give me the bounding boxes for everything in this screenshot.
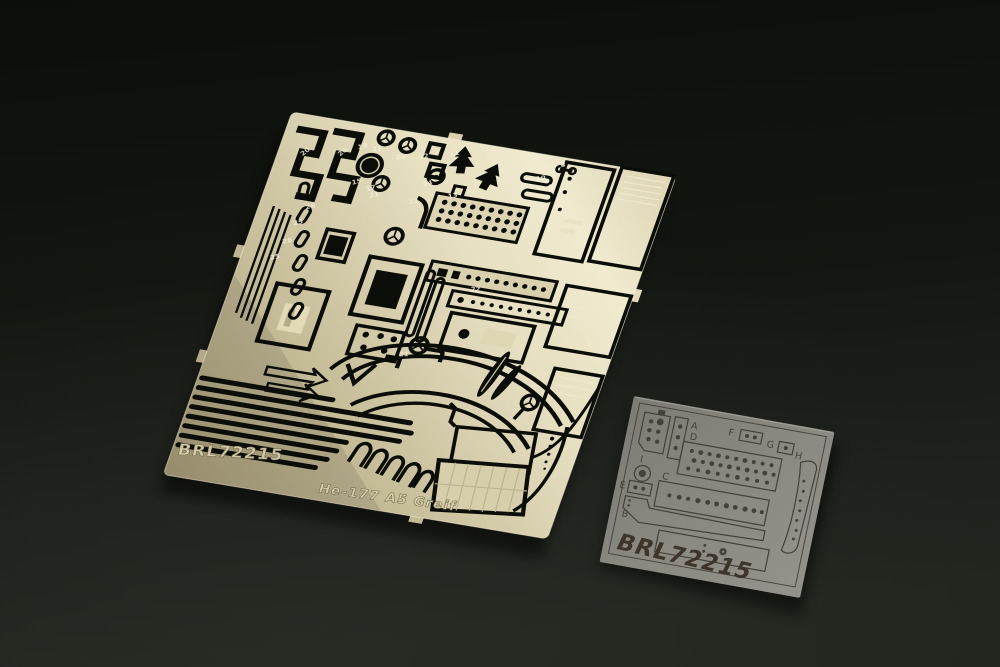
film-sheet: A F G H D I C E B BRL72215 bbox=[599, 396, 834, 598]
photo-canvas: 20 20 21 21 19 15 17 12 11 22 21 14 13 8… bbox=[0, 0, 1000, 667]
part-number-label: 9 bbox=[548, 183, 554, 191]
photo-scene: 20 20 21 21 19 15 17 12 11 22 21 14 13 8… bbox=[0, 0, 1000, 667]
part-number-label: 21 bbox=[399, 350, 410, 358]
part-number-label: 22 bbox=[470, 286, 481, 294]
part-number-label: 8 bbox=[560, 161, 566, 169]
part-number-label: 10 bbox=[536, 174, 546, 183]
